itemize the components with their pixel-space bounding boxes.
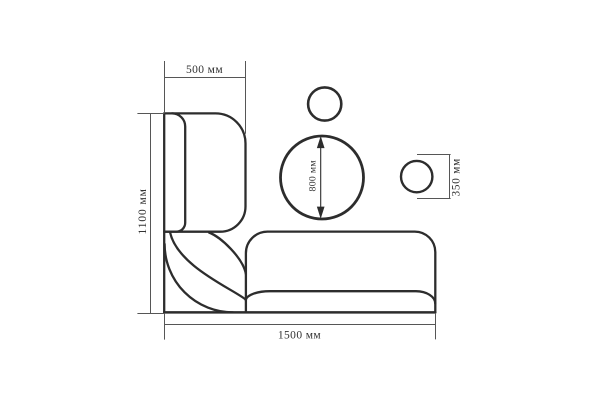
svg-text:1100 мм: 1100 мм xyxy=(137,188,149,234)
svg-text:1500 мм: 1500 мм xyxy=(278,330,322,342)
svg-text:800 мм: 800 мм xyxy=(308,160,319,191)
svg-text:500 мм: 500 мм xyxy=(186,64,223,76)
svg-text:350 мм: 350 мм xyxy=(450,158,462,197)
